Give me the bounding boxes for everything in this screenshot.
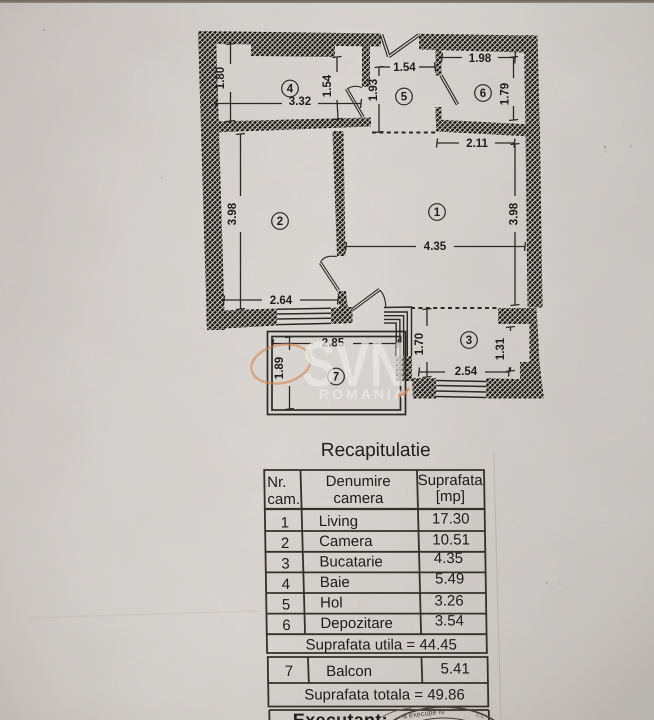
- svg-text:1.54: 1.54: [322, 74, 334, 97]
- svg-text:3.98: 3.98: [509, 202, 521, 225]
- svg-text:Executant:: Executant:: [293, 710, 388, 720]
- svg-text:3.32: 3.32: [289, 96, 311, 108]
- svg-text:1.89: 1.89: [274, 357, 286, 379]
- svg-text:1: 1: [434, 207, 441, 219]
- svg-text:4: 4: [287, 84, 294, 96]
- svg-text:Camera: Camera: [319, 533, 373, 550]
- svg-text:3: 3: [281, 556, 290, 573]
- svg-text:5.49: 5.49: [435, 571, 464, 588]
- svg-text:1.31: 1.31: [495, 337, 507, 360]
- svg-text:Depozitare: Depozitare: [320, 615, 393, 632]
- svg-text:2: 2: [281, 535, 290, 552]
- svg-text:Recapitulatie: Recapitulatie: [321, 440, 431, 461]
- svg-text:5: 5: [282, 597, 291, 614]
- svg-text:Balcon: Balcon: [326, 663, 372, 680]
- svg-text:Suprafata utila = 44.45: Suprafata utila = 44.45: [305, 637, 457, 654]
- svg-text:2.11: 2.11: [466, 138, 488, 150]
- svg-text:4: 4: [281, 576, 290, 593]
- svg-text:3.98: 3.98: [227, 202, 239, 225]
- svg-text:5.41: 5.41: [440, 661, 469, 678]
- svg-text:Living: Living: [319, 513, 358, 530]
- svg-text:2.54: 2.54: [455, 366, 478, 378]
- svg-text:4.35: 4.35: [434, 550, 463, 567]
- svg-text:3.54: 3.54: [435, 613, 464, 630]
- svg-text:10.51: 10.51: [432, 532, 470, 549]
- svg-text:Hol: Hol: [320, 595, 343, 612]
- svg-text:2: 2: [277, 216, 283, 228]
- svg-text:5: 5: [401, 92, 408, 104]
- svg-text:17.30: 17.30: [432, 511, 470, 528]
- svg-text:cam.: cam.: [267, 491, 300, 508]
- svg-text:Denumire: Denumire: [326, 473, 391, 490]
- svg-text:1.79: 1.79: [500, 83, 512, 105]
- svg-text:4.35: 4.35: [424, 241, 447, 253]
- svg-text:1.80: 1.80: [215, 67, 227, 89]
- svg-text:1.93: 1.93: [368, 79, 380, 101]
- svg-text:3: 3: [466, 335, 472, 347]
- svg-text:6: 6: [480, 88, 486, 100]
- svg-text:Baie: Baie: [320, 574, 350, 591]
- svg-text:[mp]: [mp]: [436, 488, 465, 505]
- svg-text:3.26: 3.26: [434, 593, 463, 610]
- svg-text:Suprafata: Suprafata: [418, 472, 484, 489]
- svg-text:Suprafata totala = 49.86: Suprafata totala = 49.86: [304, 687, 465, 704]
- svg-text:camera: camera: [333, 490, 384, 507]
- svg-text:1.98: 1.98: [469, 53, 492, 65]
- svg-text:2.64: 2.64: [270, 295, 293, 307]
- svg-text:1: 1: [281, 515, 290, 532]
- svg-text:1.54: 1.54: [393, 62, 416, 74]
- svg-text:6: 6: [282, 617, 291, 634]
- svg-text:Nr.: Nr.: [267, 474, 286, 491]
- svg-text:Bucatarie: Bucatarie: [319, 554, 383, 571]
- svg-text:7: 7: [285, 663, 294, 680]
- svg-text:1.70: 1.70: [414, 333, 426, 355]
